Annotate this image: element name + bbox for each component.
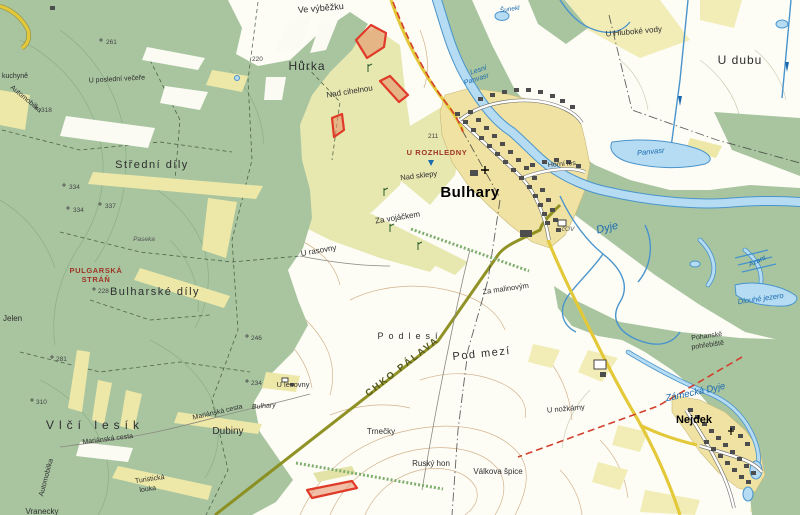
label-u-dubu: U dubu [718,53,763,67]
spot-height: 310 [36,399,47,406]
label-vranecky: Vranecky [25,507,58,515]
label-vlci-lesik: Vlčí lesík [46,418,144,432]
spot-height: 234 [251,380,262,387]
label-dubiny: Dubiny [212,426,243,437]
spot-height: 261 [106,39,117,46]
label-kuchyne: kuchyně [2,73,28,80]
label-pulgarska-stran-1: PULGARSKÁ [70,266,123,275]
label-trnecky: Trnečky [367,427,395,436]
label-valkova-spice: Válkova špice [473,467,523,476]
label-nejdek-town: Nejdek [676,414,713,426]
map-canvas[interactable]: 261 318 334 334 337 228 246 281 310 234 … [0,0,800,515]
label-rusky-hon: Ruský hon [412,459,450,468]
label-u-rozhledny: U ROZHLEDNY [407,148,468,157]
spot-height: 220 [252,56,263,63]
spot-height: 334 [69,184,80,191]
label-bulhary-town: Bulhary [440,184,500,201]
spot-height: 211 [428,133,439,140]
label-pulgarska-stran-2: STRÁŇ [82,275,111,284]
spot-height: 337 [105,203,116,210]
spot-height: 246 [251,335,262,342]
map-viewport[interactable]: 261 318 334 334 337 228 246 281 310 234 … [0,0,800,515]
label-cov: čOV [562,226,575,233]
spot-height: 281 [56,356,67,363]
label-stredni-dily: Střední díly [115,159,189,171]
farm-building [594,360,606,369]
label-bulharske-dily: Bulharské díly [110,286,200,298]
label-paseka: Paseka [133,236,155,243]
spot-height: 228 [98,288,109,295]
label-u-lesovny: U lesovny [277,380,310,389]
label-hurka: Hůrka [288,59,325,73]
label-jelen: Jelen [3,314,22,323]
spot-height: 334 [73,207,84,214]
